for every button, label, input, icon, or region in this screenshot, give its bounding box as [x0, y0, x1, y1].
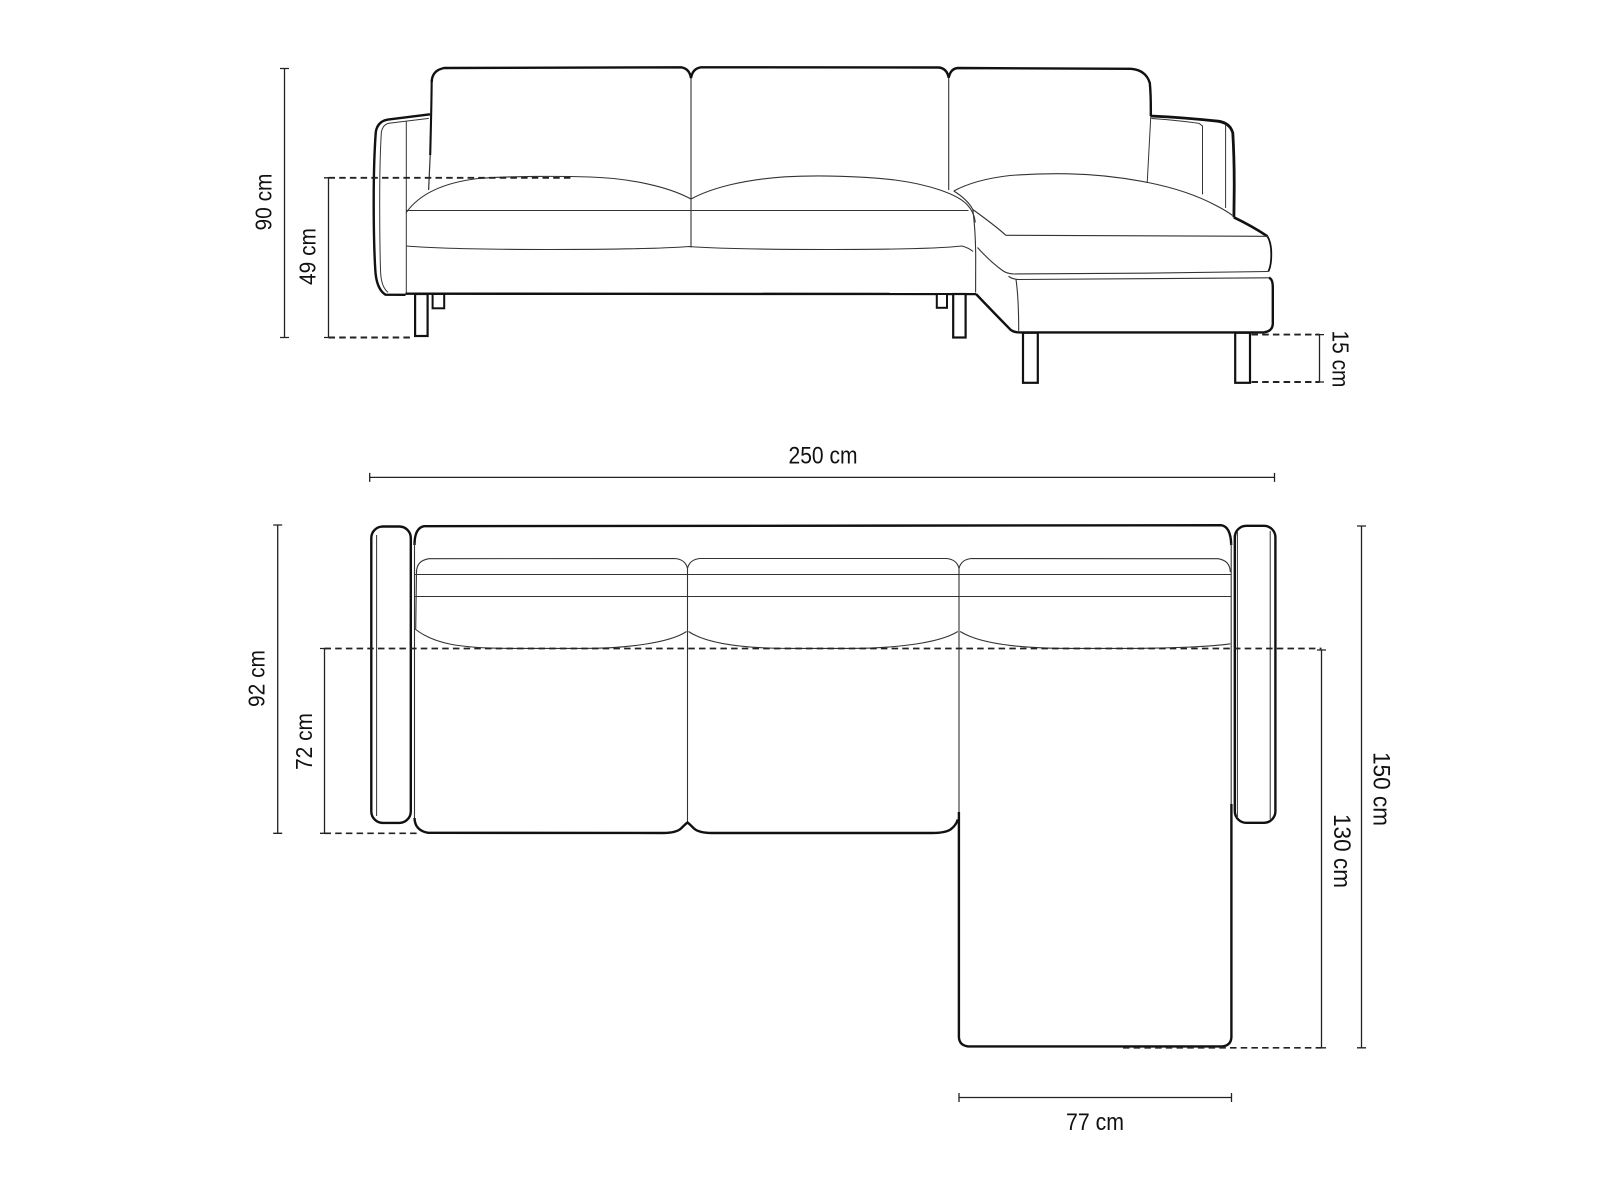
svg-text:77 cm: 77 cm	[1066, 1109, 1124, 1136]
svg-text:90 cm: 90 cm	[251, 174, 277, 231]
svg-text:92 cm: 92 cm	[244, 650, 270, 707]
svg-text:72 cm: 72 cm	[291, 713, 317, 770]
svg-text:49 cm: 49 cm	[295, 228, 321, 285]
svg-text:250 cm: 250 cm	[789, 443, 858, 470]
svg-text:15 cm: 15 cm	[1328, 331, 1354, 388]
svg-text:130 cm: 130 cm	[1328, 814, 1355, 888]
svg-text:150 cm: 150 cm	[1368, 752, 1395, 826]
